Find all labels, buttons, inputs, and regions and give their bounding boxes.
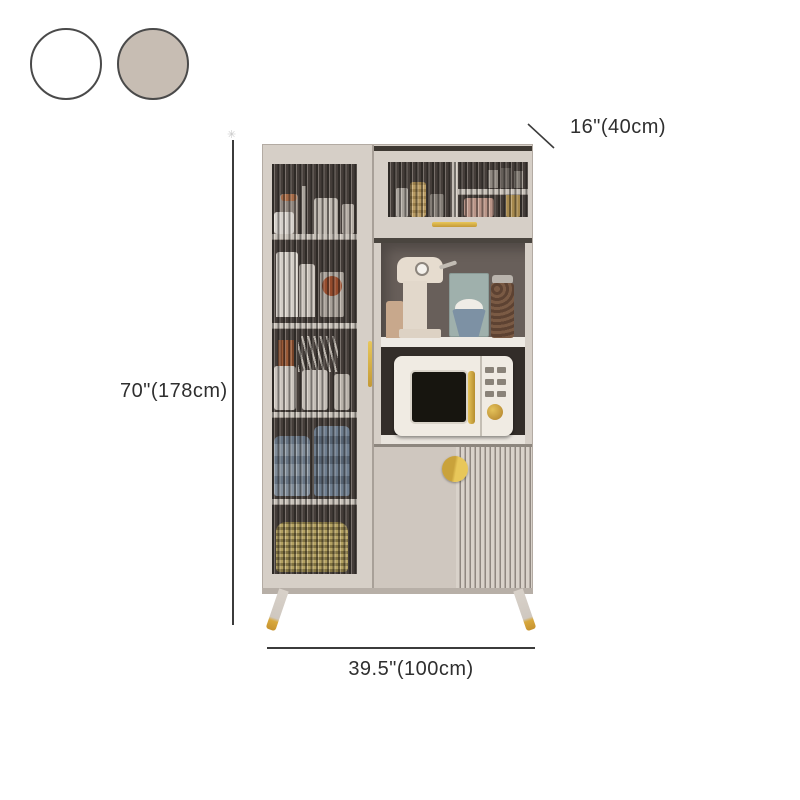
- upper-cabinet-glass: [388, 162, 528, 217]
- width-dimension-line: [267, 647, 535, 649]
- microwave-shelf: [381, 435, 525, 444]
- height-dimension-line: [232, 140, 234, 625]
- depth-dimension-label: 16"(40cm): [570, 116, 666, 139]
- upper-cabinet-handle[interactable]: [432, 222, 477, 227]
- microwave-button: [485, 391, 494, 397]
- fluted-glass-overlay: [388, 162, 528, 217]
- cabinet: [262, 144, 533, 634]
- center-stile-line: [372, 145, 374, 588]
- microwave-knob: [487, 404, 503, 420]
- door-knob[interactable]: [442, 456, 468, 482]
- coffee-machine-dial: [415, 262, 429, 276]
- left-door-handle[interactable]: [368, 341, 372, 387]
- product-diagram: 16"(40cm) ✳ 70"(178cm) 39.5"(100cm): [0, 0, 800, 800]
- left-door-glass: [272, 164, 357, 574]
- microwave-button: [485, 367, 494, 373]
- microwave-panel-divider: [480, 356, 482, 436]
- height-dimension-label: 70"(178cm): [120, 380, 222, 403]
- microwave-handle: [468, 371, 475, 424]
- microwave-button: [497, 367, 506, 373]
- cabinet-leg-left: [266, 588, 289, 631]
- coffee-machine-column: [403, 281, 427, 331]
- bean-jar: [491, 283, 514, 338]
- open-shelf-niche: [373, 243, 532, 347]
- microwave-button: [497, 391, 506, 397]
- cabinet-leg-right: [513, 588, 536, 631]
- coffee-machine-base: [399, 329, 441, 338]
- fluted-glass-overlay: [272, 164, 357, 574]
- microwave-niche: [373, 347, 532, 444]
- width-dimension-label: 39.5"(100cm): [335, 658, 487, 681]
- color-swatch-khaki[interactable]: [117, 28, 189, 100]
- microwave-button: [497, 379, 506, 385]
- microwave-button: [485, 379, 494, 385]
- color-swatch-white[interactable]: [30, 28, 102, 100]
- cabinet-base: [262, 588, 533, 594]
- microwave-window: [410, 370, 468, 424]
- shelf-floor: [381, 337, 525, 347]
